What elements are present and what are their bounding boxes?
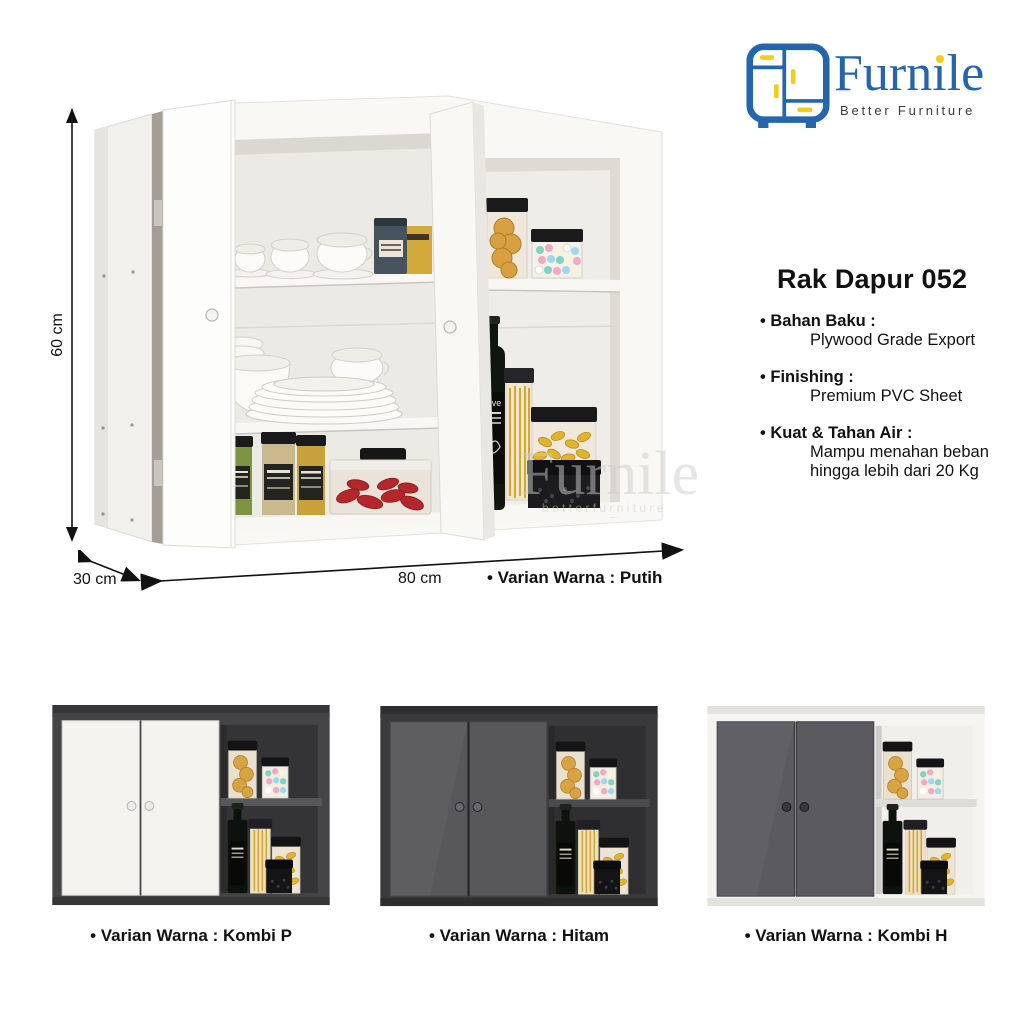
hero-variant-label: • Varian Warna : Putih [487,568,662,588]
spec-label: • Kuat & Tahan Air : [760,423,1015,443]
variant-label-kombi-h: • Varian Warna : Kombi H [707,926,985,946]
spec-kuat-tahan-air: • Kuat & Tahan Air : Mampu menahan beban… [760,423,1015,481]
cabinet-logo-icon [746,42,830,130]
depth-dimension-label: 30 cm [73,571,117,589]
spec-value: Plywood Grade Export [810,331,995,350]
spec-bahan-baku: • Bahan Baku : Plywood Grade Export [760,311,1015,350]
watermark-tagline: b e t t e r f u r n i t u r e [542,501,664,515]
spec-value: Premium PVC Sheet [810,387,995,406]
spec-finishing: • Finishing : Premium PVC Sheet [760,367,1015,406]
hero-product-image: 'live Furnile b e t t e r f u r n i t u … [90,92,710,572]
variant-image-hitam [380,704,658,910]
spec-label: • Bahan Baku : [760,311,1015,331]
brand-name: Furnile [834,48,984,100]
variant-image-kombi-p [52,703,330,909]
variant-label-hitam: • Varian Warna : Hitam [380,926,658,946]
brand-logo: Furnile Better Furniture [746,42,996,132]
product-details: Rak Dapur 052 • Bahan Baku : Plywood Gra… [760,264,1015,498]
product-sheet: Furnile Better Furniture [0,0,1024,1024]
spec-value: Mampu menahan beban hingga lebih dari 20… [810,443,995,481]
brand-tagline: Better Furniture [840,103,984,118]
width-dimension-label: 80 cm [398,570,442,588]
spec-label: • Finishing : [760,367,1015,387]
watermark-text: Furnile [520,440,699,508]
product-title: Rak Dapur 052 [777,264,1015,295]
variant-label-kombi-p: • Varian Warna : Kombi P [52,926,330,946]
height-dimension-label: 60 cm [49,305,67,365]
variant-image-kombi-h [707,704,985,910]
